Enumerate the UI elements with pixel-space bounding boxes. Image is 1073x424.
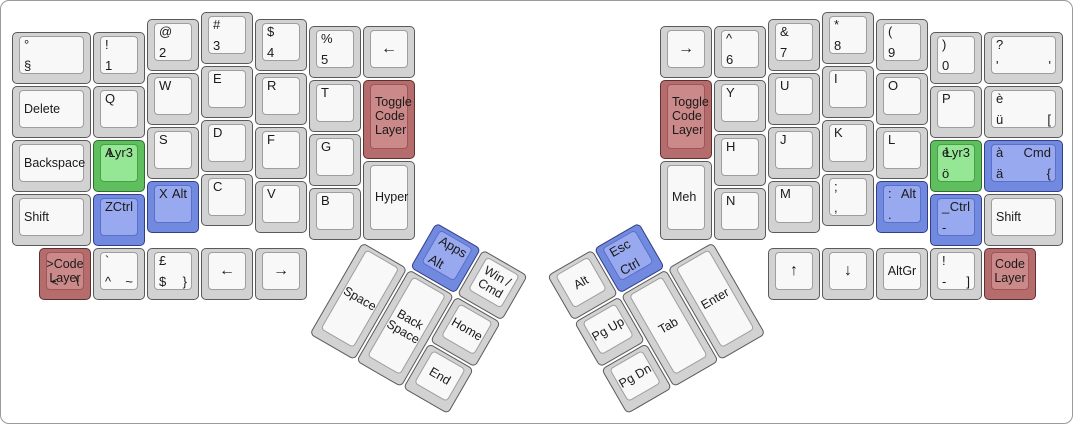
key-legend-tl: Q xyxy=(105,92,115,106)
key-legend-tl: : xyxy=(888,187,892,201)
key-face: àCmdä{ xyxy=(991,144,1056,182)
key-legend-ml: Toggle Code Layer xyxy=(668,85,704,148)
key-legend-tl: ! xyxy=(105,38,109,52)
key-agrave-cmd[interactable]: àCmdä{ xyxy=(984,140,1063,192)
key-face: ← xyxy=(208,252,246,290)
key-8[interactable]: *8 xyxy=(822,12,874,64)
key-2[interactable]: @2 xyxy=(147,19,199,71)
key-face: M xyxy=(775,185,813,223)
key-1[interactable]: !1 xyxy=(93,32,145,84)
key-backspace[interactable]: Backspace xyxy=(12,140,91,192)
key-face: T xyxy=(316,84,354,122)
key-face: C xyxy=(208,178,246,216)
key-face: AltGr xyxy=(883,252,921,290)
key-face: Delete xyxy=(19,90,84,128)
key-legend-tl: T xyxy=(321,86,329,100)
key-c[interactable]: C xyxy=(201,174,253,226)
key-toggle-code-layer-right[interactable]: Toggle Code Layer xyxy=(660,80,712,159)
key-face: ZCtrl xyxy=(100,198,138,236)
key-i[interactable]: I xyxy=(822,66,874,118)
key-legend-tr: Cmd xyxy=(1024,146,1051,160)
key-legend-tl: I xyxy=(834,72,838,86)
key-legend-tl: G xyxy=(321,140,331,154)
key-legend-tl: V xyxy=(267,187,276,201)
key-face: L xyxy=(883,131,921,169)
key-legend-tl: J xyxy=(780,133,787,147)
key-face: Shift xyxy=(991,198,1056,236)
key-legend-br: } xyxy=(183,275,187,289)
key-legend-bl: 0 xyxy=(942,59,949,73)
key-legend-ml: Shift xyxy=(992,199,1055,235)
key-e[interactable]: E xyxy=(201,66,253,118)
key-legend-tl: B xyxy=(321,194,330,208)
key-face: → xyxy=(262,252,300,290)
key-face: !-] xyxy=(937,252,975,290)
key-face: → xyxy=(667,30,705,68)
key-legend-br: [ xyxy=(1047,113,1051,127)
key-g[interactable]: G xyxy=(309,134,361,186)
key-legend-tl: & xyxy=(780,25,789,39)
key-face: Y xyxy=(721,84,759,122)
key-face: éLyr3ö xyxy=(937,144,975,182)
arrow-icon: ← xyxy=(209,253,245,289)
key-legend-bl: 4 xyxy=(267,46,274,60)
key-f[interactable]: F xyxy=(255,127,307,179)
key-arrow-down[interactable]: ↓ xyxy=(822,248,874,300)
key-legend-br: \ xyxy=(75,275,79,289)
key-q[interactable]: Q xyxy=(93,86,145,138)
key-legend-tl: K xyxy=(834,126,843,140)
key-5[interactable]: %5 xyxy=(309,26,361,78)
key-question-apostrophe[interactable]: ?'' xyxy=(984,32,1063,84)
key-legend-bl: . xyxy=(888,208,892,222)
key-eacute-lyr3[interactable]: éLyr3ö xyxy=(930,140,982,192)
key-legend-br: ' xyxy=(1049,59,1051,73)
key-code-layer-bottom-right[interactable]: Code Layer xyxy=(984,248,1036,300)
key-legend-bl: § xyxy=(24,59,31,73)
key-legend-tl: * xyxy=(834,18,839,32)
key-0[interactable]: )0 xyxy=(930,32,982,84)
key-face: $4 xyxy=(262,23,300,61)
key-s[interactable]: S xyxy=(147,127,199,179)
arrow-icon: ← xyxy=(371,31,407,67)
key-legend-br: ] xyxy=(966,275,970,289)
key-legend-bl: ' xyxy=(996,59,998,73)
key-shift-right[interactable]: Shift xyxy=(984,194,1063,246)
key-legend-bl: 7 xyxy=(780,46,787,60)
key-legend-tl: Z xyxy=(105,200,113,214)
key-legend-c: Home xyxy=(442,304,491,353)
key-legend-bl: 3 xyxy=(213,39,220,53)
key-w[interactable]: W xyxy=(147,73,199,125)
key-legend-bl: ü xyxy=(996,113,1003,127)
key-legend-tl: E xyxy=(213,72,222,86)
key-legend-tr: Lyr3 xyxy=(945,146,970,160)
key-legend-ml: Meh xyxy=(668,166,704,229)
key-u[interactable]: U xyxy=(768,73,820,125)
key-legend-ml: Shift xyxy=(20,199,83,235)
key-arrow-left-bottom[interactable]: ← xyxy=(201,248,253,300)
key-face: ALyr3 xyxy=(100,144,138,182)
key-x-alt[interactable]: XAlt xyxy=(147,181,199,233)
key-legend-tr: Alt xyxy=(172,187,187,201)
key-legend-tl: @ xyxy=(159,25,172,39)
key-semicolon-comma[interactable]: ;, xyxy=(822,174,874,226)
key-p[interactable]: P xyxy=(930,86,982,138)
key-6[interactable]: ^6 xyxy=(714,26,766,78)
key-pound-dollar[interactable]: £$} xyxy=(147,248,199,300)
key-legend-c: Pg Dn xyxy=(610,351,659,400)
key-arrow-left-inner[interactable]: ← xyxy=(363,26,415,78)
key-face: èü[ xyxy=(991,90,1056,128)
key-v[interactable]: V xyxy=(255,181,307,233)
key-r[interactable]: R xyxy=(255,73,307,125)
arrow-icon: → xyxy=(263,253,299,289)
key-exclam-bracket[interactable]: !-] xyxy=(930,248,982,300)
key-legend-c: End xyxy=(415,351,464,400)
key-h[interactable]: H xyxy=(714,134,766,186)
key-o[interactable]: O xyxy=(876,73,928,125)
key-face: G xyxy=(316,138,354,176)
key-legend-bl: 6 xyxy=(726,53,733,67)
key-legend-bl: 1 xyxy=(105,59,112,73)
key-face: °§ xyxy=(19,36,84,74)
key-altgr[interactable]: AltGr xyxy=(876,248,928,300)
key-face: (9 xyxy=(883,23,921,61)
key-legend-tl: ) xyxy=(942,38,946,52)
key-face: Toggle Code Layer xyxy=(370,84,408,149)
key-legend-bl: - xyxy=(942,221,946,235)
key-legend-tl: F xyxy=(267,133,275,147)
key-face: ↓ xyxy=(829,252,867,290)
key-egrave-udiaeresis[interactable]: èü[ xyxy=(984,86,1063,138)
key-face: *8 xyxy=(829,16,867,54)
key-face: U xyxy=(775,77,813,115)
key-legend-tl: à xyxy=(996,146,1003,160)
key-legend-tl: % xyxy=(321,32,333,46)
key-legend-tl: S xyxy=(159,133,168,147)
key-face: N xyxy=(721,192,759,230)
key-face: £$} xyxy=(154,252,192,290)
key-face: XAlt xyxy=(154,185,192,223)
key-face: Q xyxy=(100,90,138,128)
key-legend-bl: 8 xyxy=(834,39,841,53)
key-legend-tl: £ xyxy=(159,254,166,268)
key-legend-bl: < xyxy=(51,275,59,289)
key-legend-tr: Ctrl xyxy=(950,200,970,214)
key-code-layer-bottom-left[interactable]: >Code Layer<\ xyxy=(39,248,91,300)
key-face: H xyxy=(721,138,759,176)
key-legend-tl: M xyxy=(780,187,791,201)
key-face: Code Layer xyxy=(991,252,1029,290)
key-legend-bl: ä xyxy=(996,167,1003,181)
arrow-icon: → xyxy=(668,31,704,67)
key-face: Win / Cmd xyxy=(468,256,520,308)
key-legend-tl: _ xyxy=(942,200,949,214)
key-legend-ml: Hyper xyxy=(371,166,407,229)
key-hyper[interactable]: Hyper xyxy=(363,161,415,240)
key-legend-tr: Alt xyxy=(901,187,916,201)
key-arrow-right-bottom[interactable]: → xyxy=(255,248,307,300)
key-arrow-up[interactable]: ↑ xyxy=(768,248,820,300)
key-legend-tl: ; xyxy=(834,180,838,194)
key-z-ctrl[interactable]: ZCtrl xyxy=(93,194,145,246)
key-legend-tr: Ctrl xyxy=(113,200,133,214)
key-face: V xyxy=(262,185,300,223)
key-face: Backspace xyxy=(19,144,84,182)
key-legend-tl: $ xyxy=(267,25,274,39)
key-d[interactable]: D xyxy=(201,120,253,172)
key-face: >Code Layer<\ xyxy=(46,252,84,290)
key-legend-bl: , xyxy=(834,201,838,215)
key-delete[interactable]: Delete xyxy=(12,86,91,138)
key-face: J xyxy=(775,131,813,169)
key-toggle-code-layer-left[interactable]: Toggle Code Layer xyxy=(363,80,415,159)
key-face: Hyper xyxy=(370,165,408,230)
key-underscore-ctrl[interactable]: _Ctrl- xyxy=(930,194,982,246)
key-colon-alt[interactable]: :Alt. xyxy=(876,181,928,233)
key-legend-c: Code Layer xyxy=(992,253,1028,289)
key-a-lyr3[interactable]: ALyr3 xyxy=(93,140,145,192)
key-legend-tl: ° xyxy=(24,38,29,52)
key-face: S xyxy=(154,131,192,169)
key-degree-section[interactable]: °§ xyxy=(12,32,91,84)
key-legend-tr: Lyr3 xyxy=(108,146,133,160)
key-n[interactable]: N xyxy=(714,188,766,240)
key-shift-left[interactable]: Shift xyxy=(12,194,91,246)
key-legend-tl: P xyxy=(942,92,951,106)
key-legend-ml: Backspace xyxy=(20,145,83,181)
key-face: R xyxy=(262,77,300,115)
key-face: F xyxy=(262,131,300,169)
key-legend-tl: X xyxy=(159,187,168,201)
key-legend-c: Alt xyxy=(556,257,605,306)
key-b[interactable]: B xyxy=(309,188,361,240)
key-face: )0 xyxy=(937,36,975,74)
key-face: #3 xyxy=(208,16,246,54)
key-legend-bl: 2 xyxy=(159,46,166,60)
key-face: D xyxy=(208,124,246,162)
key-arrow-right-inner[interactable]: → xyxy=(660,26,712,78)
key-legend-bl: $ xyxy=(159,275,166,289)
key-legend-tl: ` xyxy=(105,254,109,268)
key-legend-tl: D xyxy=(213,126,222,140)
key-legend-bl: 5 xyxy=(321,53,328,67)
key-k[interactable]: K xyxy=(822,120,874,172)
key-l[interactable]: L xyxy=(876,127,928,179)
key-face: Alt xyxy=(555,256,607,308)
key-legend-c: Win / Cmd xyxy=(469,257,518,306)
key-legend-tl: ! xyxy=(942,254,946,268)
key-legend-tl: è xyxy=(996,92,1003,106)
key-legend-tl: ^ xyxy=(726,32,732,46)
key-legend-c: AltGr xyxy=(884,253,920,289)
key-face: ?'' xyxy=(991,36,1056,74)
key-legend-tl: # xyxy=(213,18,220,32)
key-face: `^~ xyxy=(100,252,138,290)
key-legend-ml: Toggle Code Layer xyxy=(371,85,407,148)
key-legend-tl: L xyxy=(888,133,895,147)
key-legend-tl: O xyxy=(888,79,898,93)
key-face: ↑ xyxy=(775,252,813,290)
key-9[interactable]: (9 xyxy=(876,19,928,71)
key-legend-br: { xyxy=(1047,167,1051,181)
key-legend-bl: Alt xyxy=(426,251,446,271)
key-legend-tl: U xyxy=(780,79,789,93)
key-legend-bl: 9 xyxy=(888,46,895,60)
key-face: Toggle Code Layer xyxy=(667,84,705,149)
key-legend-tl: R xyxy=(267,79,276,93)
key-7[interactable]: &7 xyxy=(768,19,820,71)
key-face: _Ctrl- xyxy=(937,198,975,236)
key-meh[interactable]: Meh xyxy=(660,161,712,240)
key-j[interactable]: J xyxy=(768,127,820,179)
key-face: AppsAlt xyxy=(421,229,473,281)
key-legend-bl: - xyxy=(942,275,946,289)
key-face: W xyxy=(154,77,192,115)
key-legend-tl: H xyxy=(726,140,735,154)
key-legend-tl: ( xyxy=(888,25,892,39)
key-face: O xyxy=(883,77,921,115)
key-face: B xyxy=(316,192,354,230)
key-face: P xyxy=(937,90,975,128)
key-face: ← xyxy=(370,30,408,68)
key-legend-tl: Y xyxy=(726,86,735,100)
key-legend-bl: ^ xyxy=(105,275,111,289)
key-face: @2 xyxy=(154,23,192,61)
key-face: Meh xyxy=(667,165,705,230)
arrow-icon: ↓ xyxy=(830,253,866,289)
key-face: K xyxy=(829,124,867,162)
key-legend-tl: Esc xyxy=(607,236,633,259)
key-legend-br: ~ xyxy=(125,275,133,289)
key-y[interactable]: Y xyxy=(714,80,766,132)
key-face: E xyxy=(208,70,246,108)
key-t[interactable]: T xyxy=(309,80,361,132)
arrow-icon: ↑ xyxy=(776,253,812,289)
key-face: !1 xyxy=(100,36,138,74)
key-legend-tl: W xyxy=(159,79,171,93)
key-legend-c: Pg Up xyxy=(583,304,632,353)
key-4[interactable]: $4 xyxy=(255,19,307,71)
key-face: :Alt. xyxy=(883,185,921,223)
key-face: ^6 xyxy=(721,30,759,68)
key-face: EscCtrl xyxy=(602,229,654,281)
key-legend-tl: C xyxy=(213,180,222,194)
key-face: &7 xyxy=(775,23,813,61)
key-grave-caret-tilde[interactable]: `^~ xyxy=(93,248,145,300)
key-3[interactable]: #3 xyxy=(201,12,253,64)
key-legend-bl: Ctrl xyxy=(618,255,643,277)
key-m[interactable]: M xyxy=(768,181,820,233)
key-legend-ml: Delete xyxy=(20,91,83,127)
key-face: Shift xyxy=(19,198,84,236)
key-legend-tl: ? xyxy=(996,38,1003,52)
ergodox-keyboard-layout: °§DeleteBackspaceShift!1QALyr3ZCtrl@2WSX… xyxy=(0,0,1073,424)
key-legend-tl: N xyxy=(726,194,735,208)
key-face: I xyxy=(829,70,867,108)
key-face: %5 xyxy=(316,30,354,68)
key-face: ;, xyxy=(829,178,867,216)
key-legend-bl: ö xyxy=(942,167,949,181)
